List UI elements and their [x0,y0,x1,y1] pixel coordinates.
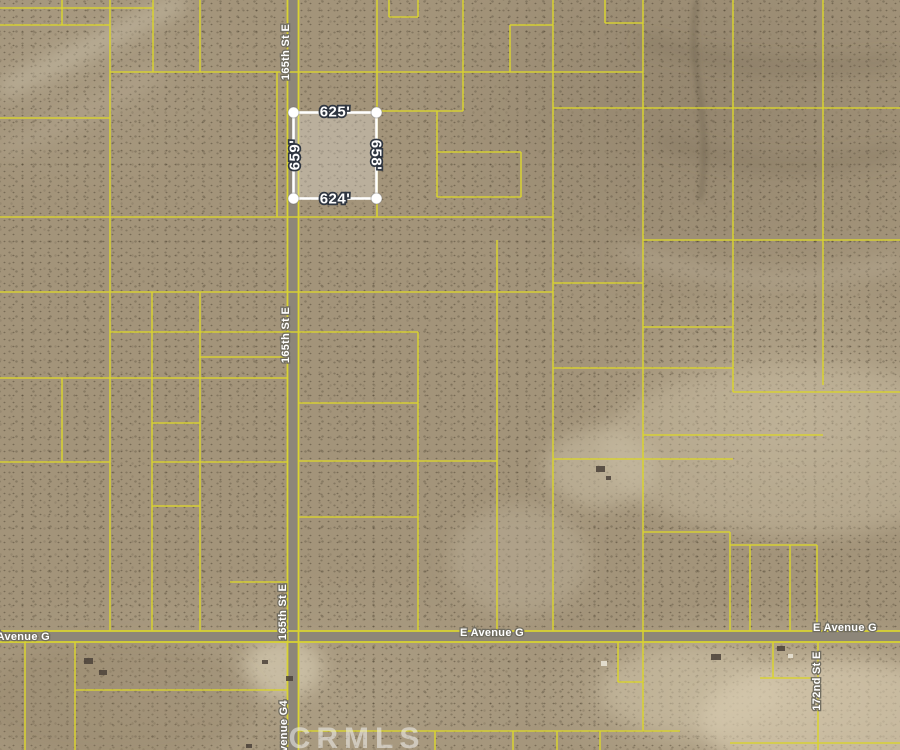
parcel-dimension-right: 658' [368,140,385,171]
map-overlay: 165th St E 165th St E 165th St E Avenue … [0,0,900,750]
street-label-165th-st-e-top: 165th St E [280,24,292,80]
parcel-vertex-handle[interactable] [371,107,382,118]
satellite-map-view[interactable]: 165th St E 165th St E 165th St E Avenue … [0,0,900,750]
parcel-dimension-top: 625' [320,104,351,121]
street-label-165th-st-e-mid: 165th St E [280,307,292,363]
parcel-vertex-handle[interactable] [288,107,299,118]
crmls-watermark: CRMLS [289,722,426,750]
street-label-165th-st-e-bottom: 165th St E [277,584,289,640]
street-label-172nd-st-e: 172nd St E [811,651,823,710]
road-e-avenue-g [0,631,900,642]
highlighted-parcel-boundary[interactable] [294,113,377,199]
highlighted-parcel[interactable]: 625' 624' 659' 658' [287,104,385,208]
street-label-e-avenue-g-center: E Avenue G [460,627,524,639]
parcel-vertex-handle[interactable] [371,193,382,204]
street-label-e-avenue-g-right: E Avenue G [813,622,877,634]
parcel-dimension-left: 659' [287,140,304,171]
parcel-vertex-handle[interactable] [288,193,299,204]
parcel-dimension-bottom: 624' [320,191,351,208]
street-label-e-avenue-g-left: E Avenue G [0,631,50,643]
